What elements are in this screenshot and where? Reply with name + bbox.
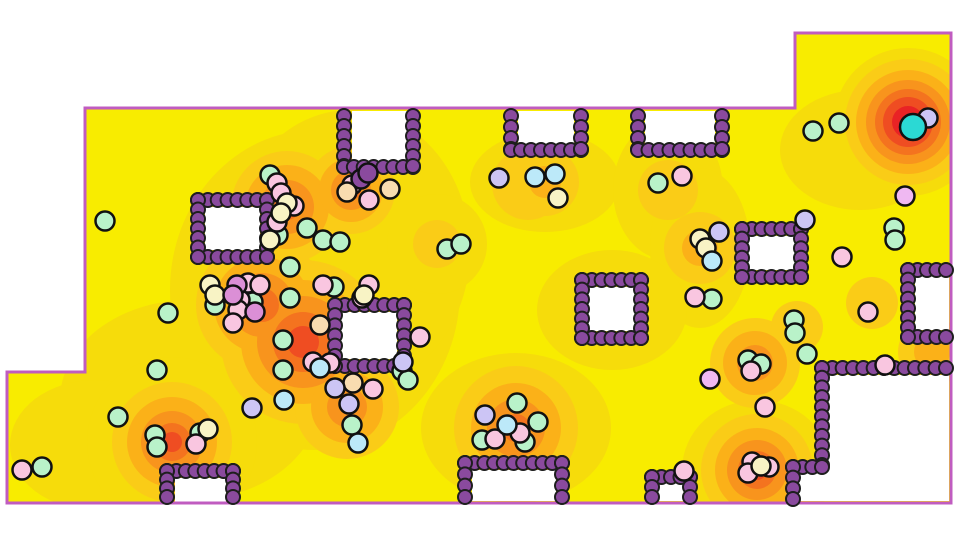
- agent-violet: [896, 187, 915, 206]
- agent-mint: [798, 345, 817, 364]
- agent-lightblue: [526, 168, 545, 187]
- agent-cream: [752, 457, 771, 476]
- agent-pink: [251, 276, 270, 295]
- agent-mint: [274, 331, 293, 350]
- agent-darkpurple: [359, 164, 378, 183]
- agent-lavender: [340, 395, 359, 414]
- agent-mint: [281, 258, 300, 277]
- agent-pink: [686, 288, 705, 307]
- agent-pink: [876, 356, 895, 375]
- agent-mint: [33, 458, 52, 477]
- wall-circle: [939, 361, 953, 375]
- wall-circle: [939, 330, 953, 344]
- agent-orchid: [246, 303, 265, 322]
- agent-lightblue: [275, 391, 294, 410]
- agent-pink: [13, 461, 32, 480]
- wall-circle: [226, 490, 240, 504]
- agent-lavender: [243, 399, 262, 418]
- agent-cream: [549, 189, 568, 208]
- wall-circle: [574, 142, 588, 156]
- white-pocket: [588, 287, 635, 331]
- agent-lightblue: [498, 416, 517, 435]
- agent-mint: [343, 416, 362, 435]
- agent-violet: [701, 370, 720, 389]
- agent-lightblue: [349, 434, 368, 453]
- agent-mint: [159, 304, 178, 323]
- agent-lightblue: [703, 252, 722, 271]
- agent-mint: [148, 438, 167, 457]
- agent-pink: [859, 303, 878, 322]
- wall-circle: [575, 331, 589, 345]
- wall-circle: [683, 490, 697, 504]
- agent-cream: [272, 204, 291, 223]
- agent-mint: [96, 212, 115, 231]
- agent-lavender: [476, 406, 495, 425]
- wall-circle: [555, 490, 569, 504]
- wall-circle: [458, 490, 472, 504]
- agent-cyan: [900, 114, 926, 140]
- agent-mint: [529, 413, 548, 432]
- agent-pink: [742, 362, 761, 381]
- wall-circle: [634, 331, 648, 345]
- agent-mint: [281, 289, 300, 308]
- white-pocket: [205, 207, 260, 250]
- agent-mint: [830, 114, 849, 133]
- agent-lavender: [394, 353, 413, 372]
- agent-pink: [833, 248, 852, 267]
- agent-lavender: [326, 379, 345, 398]
- agent-pink: [360, 191, 379, 210]
- wall-circle: [794, 270, 808, 284]
- agent-cream: [261, 231, 280, 250]
- agent-orchid: [224, 286, 243, 305]
- white-pocket: [748, 236, 795, 270]
- simulation-canvas[interactable]: [0, 0, 960, 540]
- wall-circle: [901, 330, 915, 344]
- agent-pink: [364, 380, 383, 399]
- agent-pink: [224, 314, 243, 333]
- white-pocket: [518, 111, 574, 148]
- agent-mint: [331, 233, 350, 252]
- white-pocket: [352, 111, 407, 162]
- agent-pink: [675, 462, 694, 481]
- agent-mint: [786, 324, 805, 343]
- agent-mint: [452, 235, 471, 254]
- wall-circle: [191, 250, 205, 264]
- wall-circle: [406, 159, 420, 173]
- wall-circle: [735, 270, 749, 284]
- agent-mint: [274, 361, 293, 380]
- agent-pink: [411, 328, 430, 347]
- agent-cream: [199, 420, 218, 439]
- agent-lavender: [490, 169, 509, 188]
- agent-cream: [355, 286, 374, 305]
- agent-pink: [314, 276, 333, 295]
- simulation-viewport: [0, 0, 960, 540]
- agent-mint: [804, 122, 823, 141]
- agent-mint: [649, 174, 668, 193]
- white-pocket: [341, 312, 397, 359]
- agent-mint: [508, 394, 527, 413]
- agent-mint: [399, 371, 418, 390]
- white-pocket: [175, 478, 226, 502]
- white-pocket: [915, 276, 949, 330]
- agent-lavender: [710, 223, 729, 242]
- wall-circle: [260, 250, 274, 264]
- agent-mint: [298, 219, 317, 238]
- wall-circle: [939, 263, 953, 277]
- agent-cream: [206, 286, 225, 305]
- wall-circle: [645, 490, 659, 504]
- agent-mint: [148, 361, 167, 380]
- agent-lightblue: [546, 165, 565, 184]
- agent-lightblue: [311, 359, 330, 378]
- agent-lavender: [796, 211, 815, 230]
- agent-peach: [311, 316, 330, 335]
- agent-mint: [109, 408, 128, 427]
- wall-circle: [715, 142, 729, 156]
- wall-circle: [815, 460, 829, 474]
- agent-pink: [673, 167, 692, 186]
- agent-mint: [886, 231, 905, 250]
- agent-peach: [344, 374, 363, 393]
- wall-circle: [160, 490, 174, 504]
- white-pocket: [472, 470, 556, 501]
- agent-peach: [381, 180, 400, 199]
- wall-circle: [786, 492, 800, 506]
- agent-pink: [756, 398, 775, 417]
